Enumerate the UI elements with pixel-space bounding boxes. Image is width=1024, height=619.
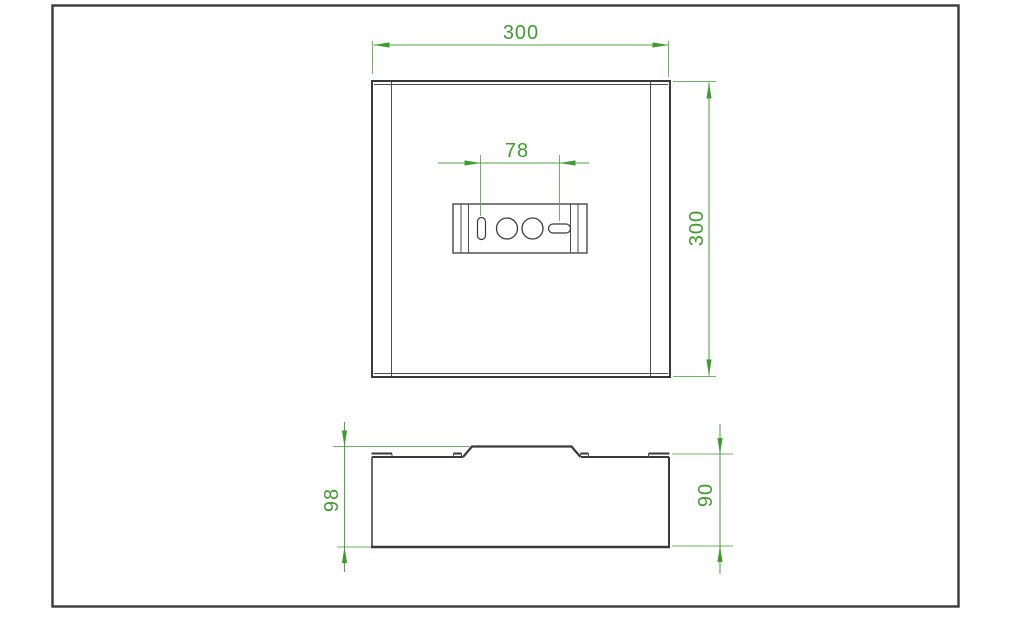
dim-overall-depth-arrow bbox=[342, 431, 347, 447]
mounting-slot-vertical bbox=[478, 218, 486, 240]
dimension-label-overall-depth: 98 bbox=[321, 488, 343, 512]
dimension-label-body-depth: 90 bbox=[695, 483, 717, 507]
canopy-bump-profile bbox=[463, 447, 581, 458]
dim-overall-depth-arrow bbox=[342, 547, 347, 563]
dimension-label-slot-spacing: 78 bbox=[505, 140, 529, 162]
mounting-slot-horizontal bbox=[549, 224, 571, 233]
dim-overall-width-arrow bbox=[653, 42, 669, 47]
dim-body-depth-arrow bbox=[717, 546, 722, 562]
drawing-sheet: 300300789890 bbox=[0, 0, 1024, 619]
wire-hole-1 bbox=[497, 218, 518, 239]
technical-drawing: 300300789890 bbox=[0, 0, 1024, 619]
dim-overall-height-arrow bbox=[706, 83, 711, 99]
dimension-label-overall-height: 300 bbox=[686, 210, 708, 246]
wire-hole-2 bbox=[522, 218, 543, 239]
dim-overall-width-arrow bbox=[374, 42, 390, 47]
dimension-label-overall-width: 300 bbox=[503, 22, 539, 44]
dim-body-depth-arrow bbox=[717, 438, 722, 454]
dim-overall-height-arrow bbox=[706, 360, 711, 376]
